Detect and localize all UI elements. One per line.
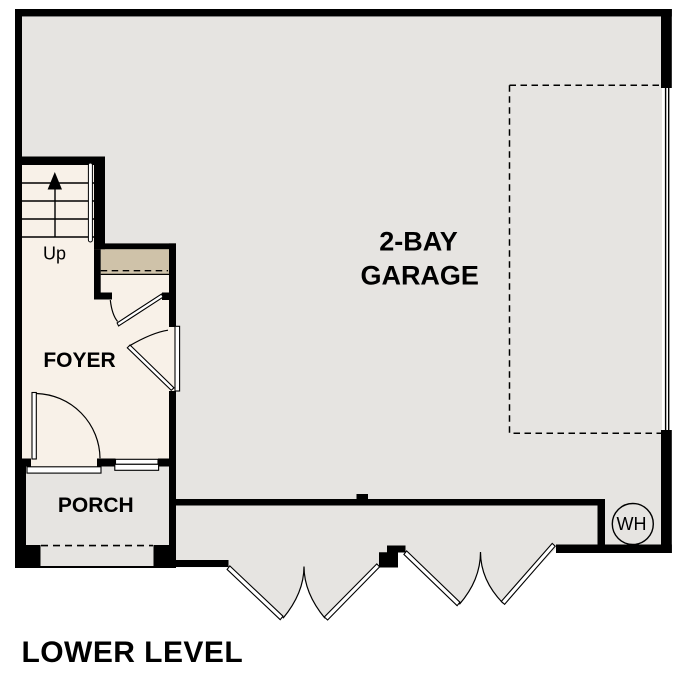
svg-text:PORCH: PORCH xyxy=(58,494,134,517)
svg-text:Up: Up xyxy=(43,244,66,264)
svg-text:GARAGE: GARAGE xyxy=(360,261,479,291)
svg-text:LOWER LEVEL: LOWER LEVEL xyxy=(22,636,244,669)
svg-text:2-BAY: 2-BAY xyxy=(379,227,458,257)
svg-text:FOYER: FOYER xyxy=(43,349,115,372)
svg-text:WH: WH xyxy=(617,514,647,534)
